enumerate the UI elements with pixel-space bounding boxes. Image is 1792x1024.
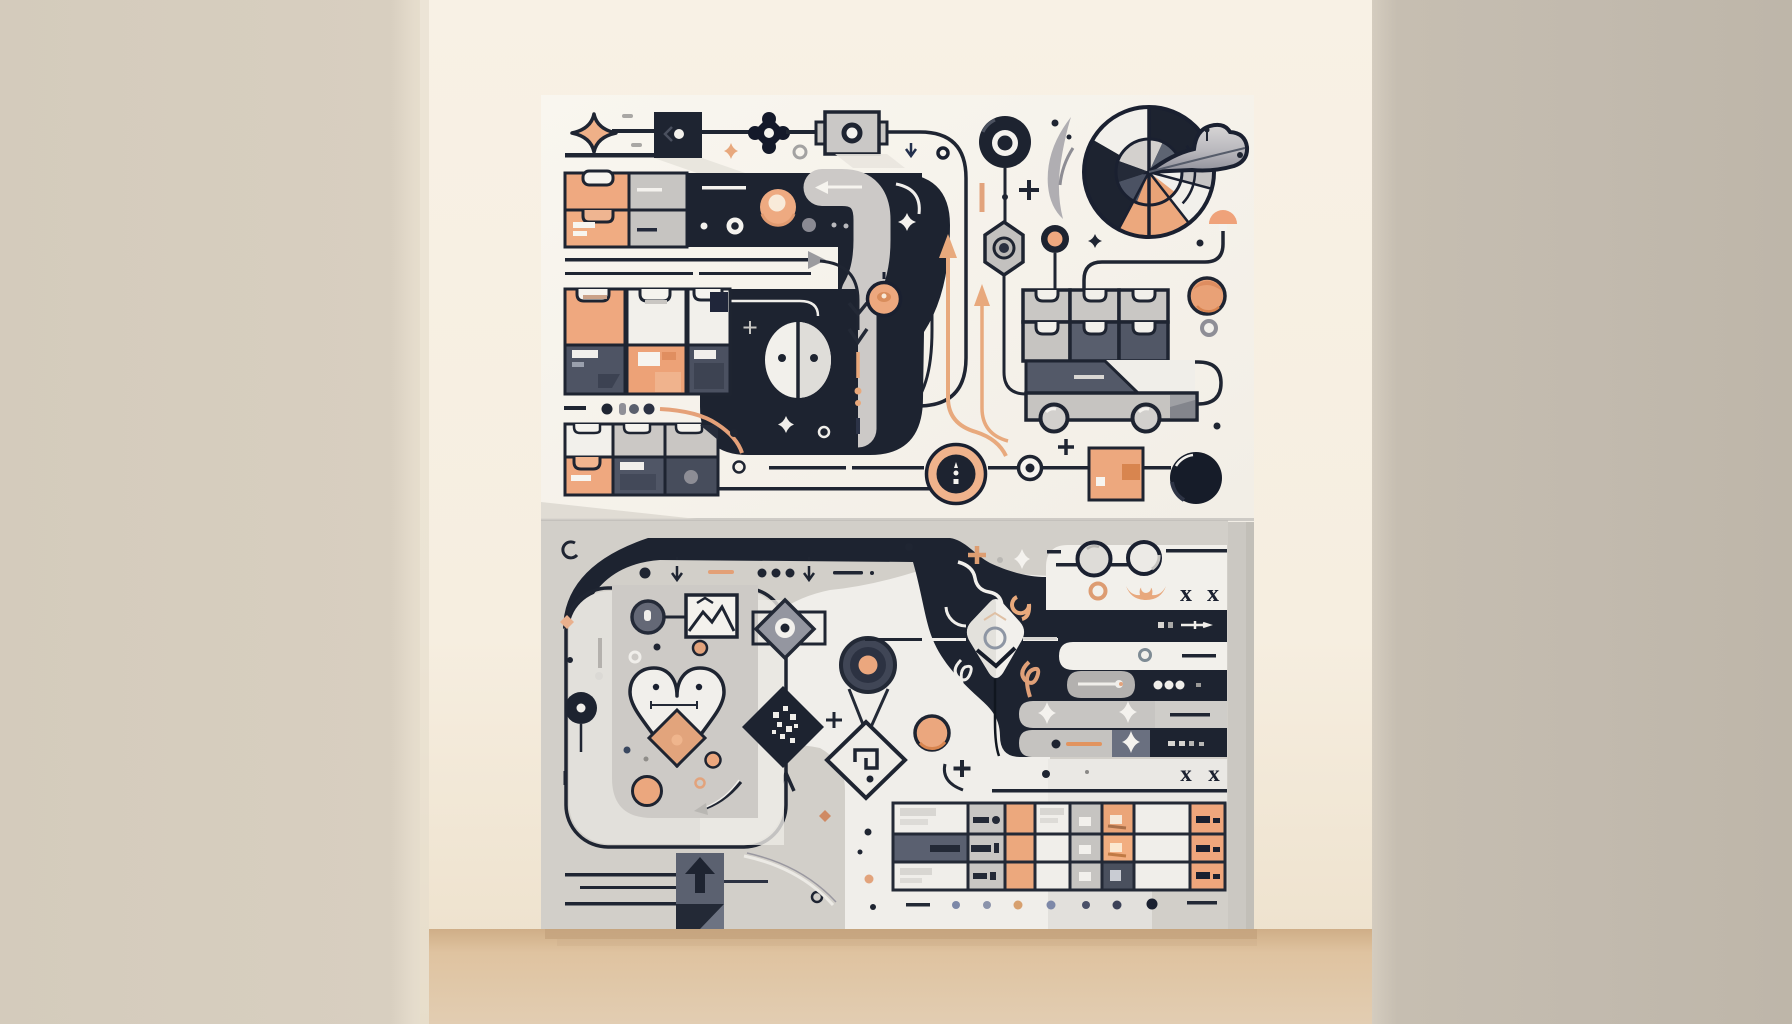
- svg-text:x: x: [1207, 581, 1219, 607]
- svg-text:x: x: [1208, 761, 1220, 786]
- svg-text:x: x: [1180, 761, 1192, 786]
- svg-text:x: x: [1180, 581, 1192, 607]
